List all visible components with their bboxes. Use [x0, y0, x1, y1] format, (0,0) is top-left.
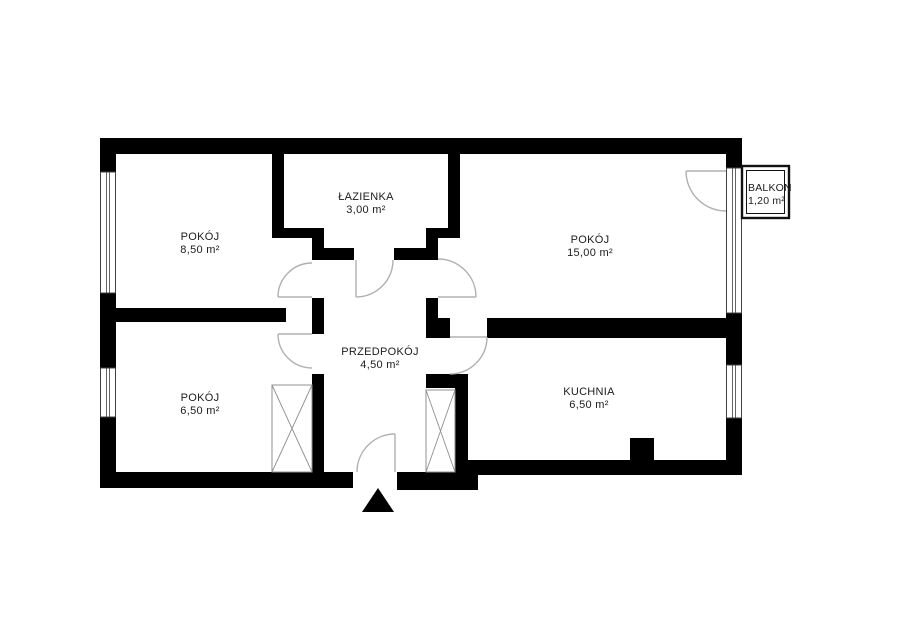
- door-bathroom-icon: [356, 260, 393, 297]
- wall-left-middle: [100, 293, 116, 368]
- door-room850-icon: [278, 263, 312, 297]
- kitchen-area: 6,50 m²: [569, 399, 608, 411]
- wall-bottom-kitchen: [465, 460, 742, 475]
- kitchen-duct: [630, 438, 654, 462]
- window-room650-icon: [101, 368, 116, 417]
- balcony-name: BALKON: [748, 182, 792, 194]
- wall-stub-right-lower: [426, 298, 438, 338]
- room650-name: POKÓJ: [181, 391, 220, 404]
- entrance-arrow-icon: [362, 488, 394, 512]
- door-room1500-icon: [438, 259, 476, 297]
- door-entrance-icon: [357, 434, 395, 472]
- walls: [100, 138, 742, 490]
- wall-stub-right-upper: [426, 238, 438, 260]
- wall-bath-south-right: [394, 248, 426, 260]
- floor-plan-page: POKÓJ 8,50 m² ŁAZIENKA 3,00 m² POKÓJ 15,…: [0, 0, 900, 637]
- wall-divider-left-rooms: [100, 308, 286, 322]
- label-room650: POKÓJ 6,50 m²: [180, 391, 219, 417]
- wall-right-lower: [726, 418, 742, 475]
- label-hallway: PRZEDPOKÓJ 4,50 m²: [341, 345, 419, 371]
- wall-bottom-left: [100, 472, 353, 488]
- wall-left-upper: [100, 154, 116, 172]
- wall-kitchen-north-west: [438, 318, 450, 338]
- wall-bath-south-left: [324, 248, 354, 260]
- wall-right-middle: [726, 313, 742, 365]
- label-room850: POKÓJ 8,50 m²: [180, 230, 219, 256]
- balcony-area: 1,20 m²: [748, 195, 785, 207]
- wall-left-lower: [100, 417, 116, 472]
- window-balcony-band-icon: [727, 168, 742, 313]
- hallway-name: PRZEDPOKÓJ: [341, 345, 419, 358]
- kitchen-name: KUCHNIA: [563, 386, 615, 398]
- wall-stub-left-lower: [312, 298, 324, 334]
- bathroom-name: ŁAZIENKA: [338, 191, 394, 203]
- room850-name: POKÓJ: [181, 230, 220, 243]
- wall-stub-left-upper: [312, 238, 324, 260]
- wall-hall-jog: [426, 374, 468, 388]
- label-bathroom: ŁAZIENKA 3,00 m²: [338, 191, 394, 216]
- door-kitchen-icon: [450, 337, 487, 374]
- door-room650-icon: [278, 334, 312, 368]
- door-balcony-icon: [686, 171, 726, 211]
- label-kitchen: KUCHNIA 6,50 m²: [563, 386, 615, 411]
- wall-top: [100, 138, 742, 154]
- window-kitchen-icon: [727, 365, 742, 418]
- hallway-area: 4,50 m²: [360, 359, 399, 371]
- room850-area: 8,50 m²: [180, 244, 219, 256]
- window-room850-icon: [101, 172, 116, 293]
- wall-room850-east: [272, 154, 284, 238]
- wall-hall-kitchen: [455, 388, 468, 475]
- floor-plan-drawing: POKÓJ 8,50 m² ŁAZIENKA 3,00 m² POKÓJ 15,…: [0, 0, 900, 637]
- wall-hall-room650: [312, 374, 324, 472]
- room1500-name: POKÓJ: [571, 233, 610, 246]
- label-room1500: POKÓJ 15,00 m²: [567, 233, 613, 259]
- wall-bath-east: [448, 154, 460, 238]
- wall-step-left: [272, 228, 324, 238]
- room650-area: 6,50 m²: [180, 405, 219, 417]
- bathroom-area: 3,00 m²: [346, 204, 385, 216]
- wardrobe-hallway-icon: [426, 390, 455, 472]
- windows: [101, 168, 742, 418]
- wall-kitchen-north: [487, 318, 726, 338]
- wardrobe-room650-icon: [272, 385, 312, 472]
- room1500-area: 15,00 m²: [567, 247, 613, 259]
- wall-right-upper: [726, 154, 742, 168]
